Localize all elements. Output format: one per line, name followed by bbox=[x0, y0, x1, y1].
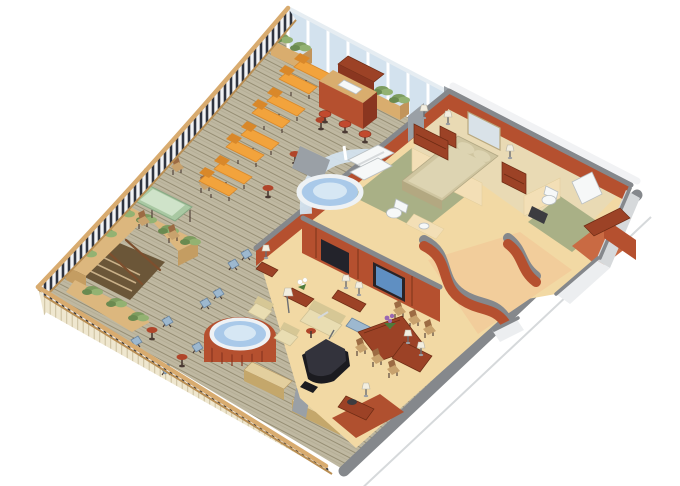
toilet bbox=[387, 208, 402, 218]
deck-whirlpool bbox=[204, 317, 276, 366]
floor-lamp bbox=[283, 288, 293, 296]
suite-floorplan-illustration bbox=[0, 0, 680, 486]
floorplan-stage bbox=[0, 0, 680, 486]
guest-toilet bbox=[542, 195, 556, 204]
vanity-sink bbox=[419, 223, 429, 229]
decorative-bowl bbox=[347, 399, 357, 405]
